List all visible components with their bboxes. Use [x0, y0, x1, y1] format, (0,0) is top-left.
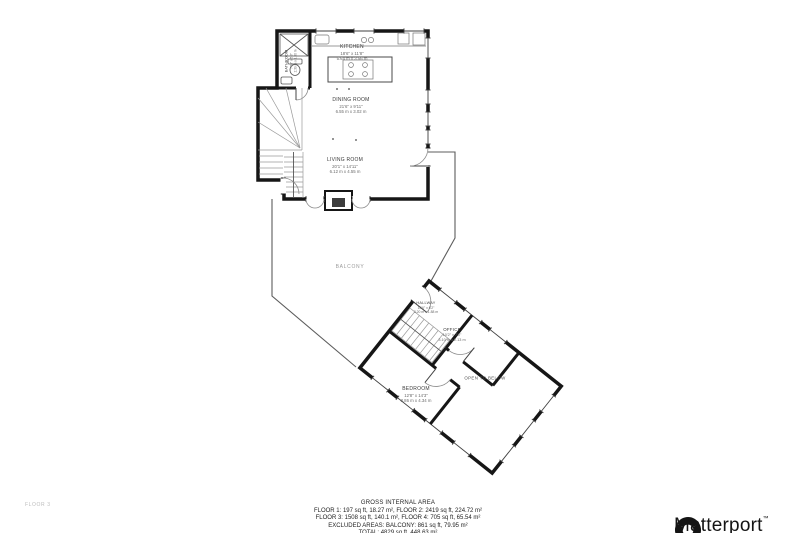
window	[354, 28, 374, 33]
open-to-below-label: OPEN TO BELOW	[464, 376, 505, 381]
room-name: BATHROOM	[285, 50, 290, 73]
window	[316, 28, 336, 33]
room-dim-metric: 2.39 m x 1.60 m	[293, 50, 297, 73]
area-summary-title: GROSS INTERNAL AREA	[314, 500, 482, 508]
lower-wing	[356, 277, 565, 477]
room-dim-metric: 3.20 m x 1.88 m	[414, 310, 438, 314]
area-summary-line: FLOOR 1: 197 sq ft, 18.27 m², FLOOR 2: 2…	[314, 508, 482, 516]
fireplace	[325, 191, 352, 210]
floorplan-drawing	[0, 0, 800, 533]
window	[425, 130, 430, 144]
room-label-hallway: HALLWAY 10'6" x 6'2" 3.20 m x 1.88 m	[414, 301, 438, 315]
room-label-dining: DINING ROOM 21'6" x 9'11" 6.55 m x 3.02 …	[332, 97, 369, 115]
room-name: KITCHEN	[337, 44, 368, 51]
room-name: DINING ROOM	[332, 97, 369, 104]
room-name: BEDROOM	[401, 386, 432, 393]
floorplan-page: KITCHEN 18'6" x 11'8" 5.64 m x 3.56 m DI…	[0, 0, 800, 533]
area-summary: GROSS INTERNAL AREA FLOOR 1: 197 sq ft, …	[314, 500, 482, 533]
matterport-logo-icon	[674, 516, 702, 533]
room-label-kitchen: KITCHEN 18'6" x 11'8" 5.64 m x 3.56 m	[337, 44, 368, 62]
door-swing	[306, 196, 325, 208]
window	[425, 90, 430, 104]
room-label-office: OFFICE 10'2" x 7'0" 3.10 m x 2.13 m	[438, 327, 465, 343]
door-swing	[352, 196, 371, 208]
trademark-symbol: ™	[763, 516, 769, 522]
room-dim-metric: 3.10 m x 2.13 m	[438, 338, 465, 343]
room-label-bedroom: BEDROOM 12'8" x 14'3" 3.86 m x 4.34 m	[401, 386, 432, 404]
floor-number-tag: FLOOR 3	[25, 502, 51, 508]
room-label-bathroom: BATHROOM 7'10" x 5'3" 2.39 m x 1.60 m	[285, 50, 298, 73]
matterport-logo: Matterport™	[674, 516, 769, 533]
room-dim-metric: 6.12 m x 4.55 m	[327, 169, 363, 175]
balcony-label: BALCONY	[336, 264, 365, 270]
area-summary-line: EXCLUDED AREAS: BALCONY: 861 sq ft, 79.9…	[314, 523, 482, 531]
window	[425, 38, 430, 58]
window	[425, 112, 430, 126]
room-dim-metric: 5.64 m x 3.56 m	[337, 56, 368, 62]
room-dim-metric: 3.86 m x 4.34 m	[401, 398, 432, 404]
area-summary-line: FLOOR 3: 1508 sq ft, 140.1 m², FLOOR 4: …	[314, 515, 482, 523]
room-dim-metric: 6.55 m x 3.02 m	[332, 109, 369, 115]
room-name: LIVING ROOM	[327, 157, 363, 164]
room-label-living: LIVING ROOM 20'1" x 14'11" 6.12 m x 4.55…	[327, 157, 363, 175]
